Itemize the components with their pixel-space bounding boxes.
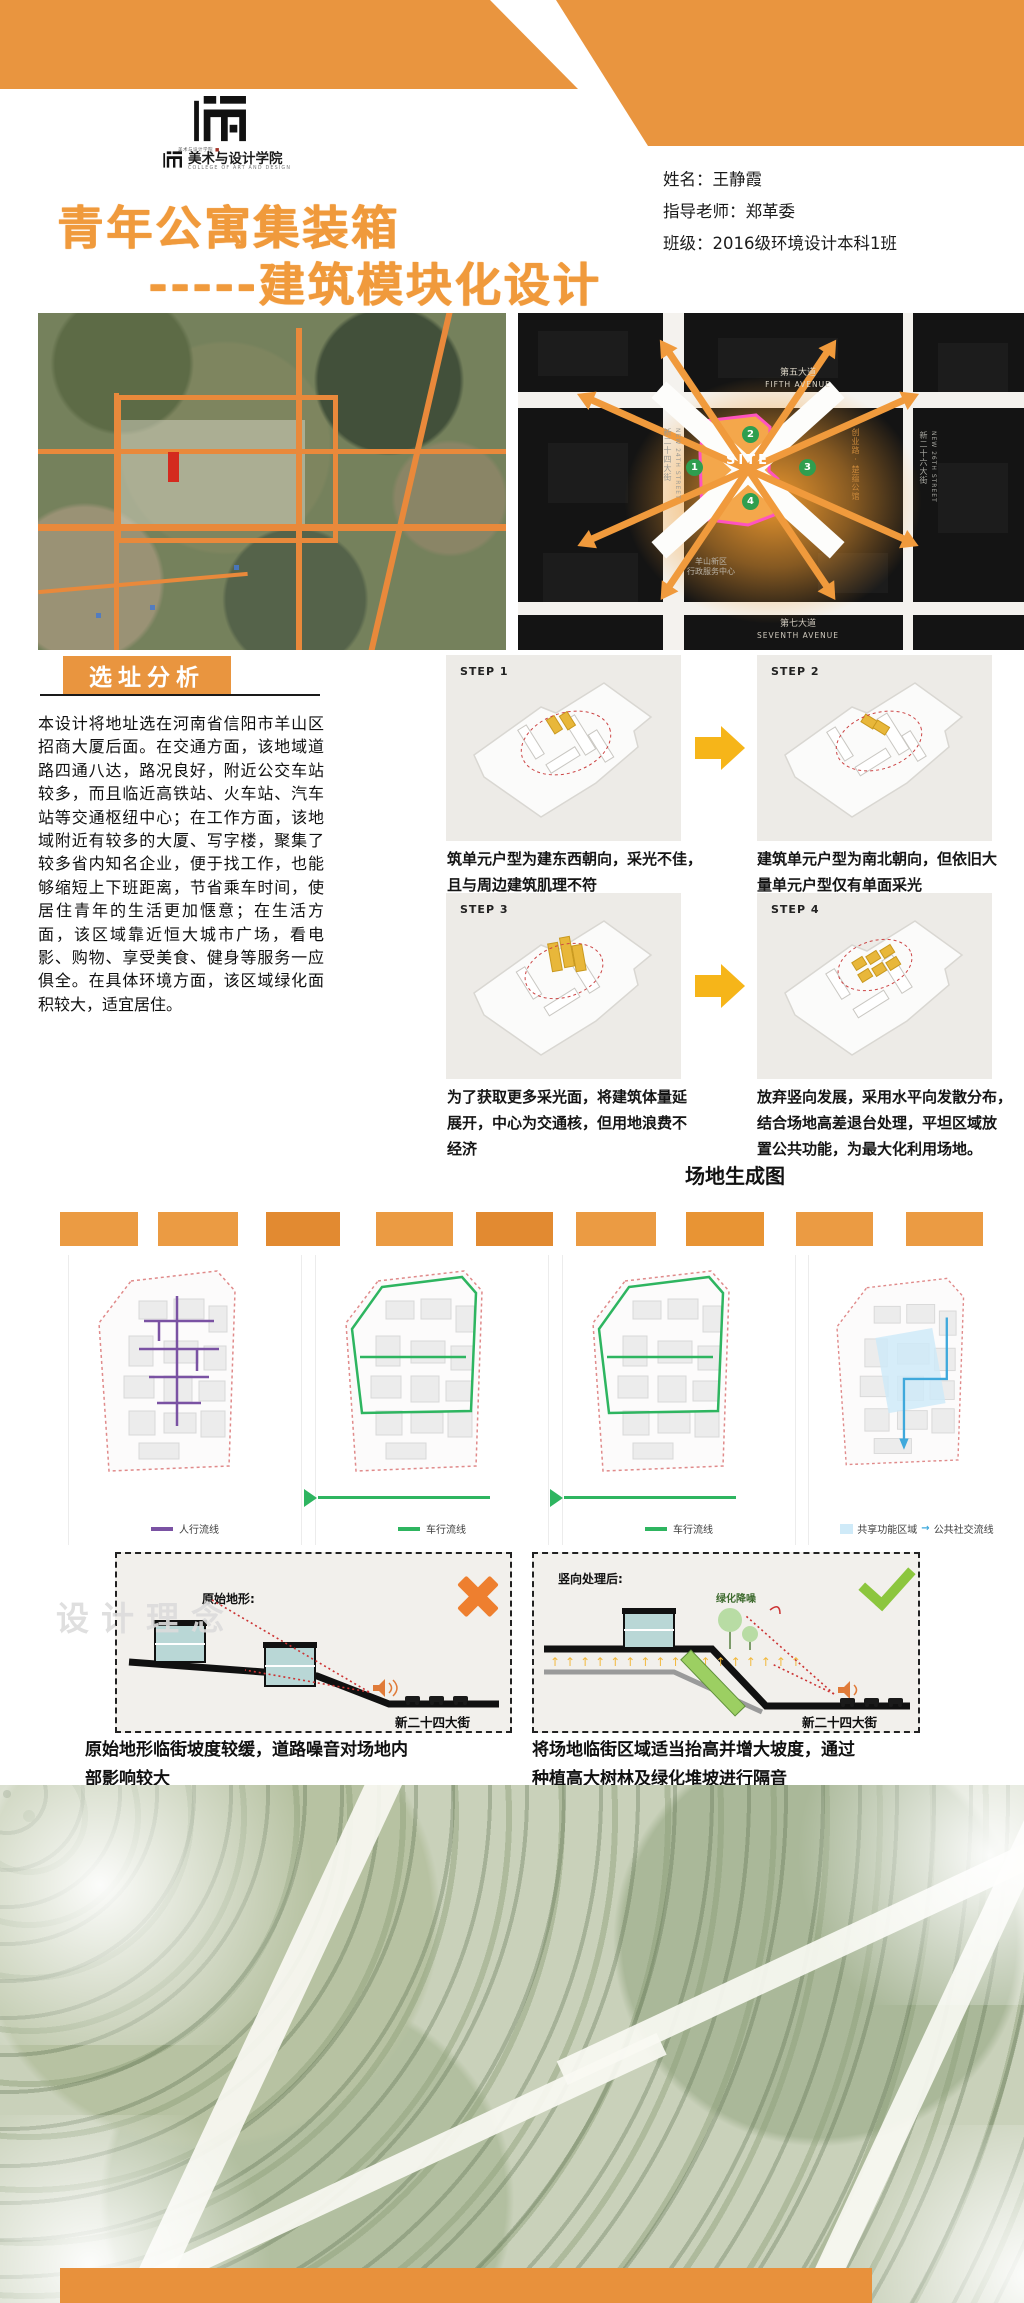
district-line1: 羊山新区 <box>668 557 754 567</box>
step-caption-1: 筑单元户型为建东西朝向，采光不佳， 且与周边建筑肌理不符 <box>447 846 702 898</box>
satellite-poi-dot <box>150 605 155 610</box>
divider-dash <box>906 1212 983 1246</box>
fog-overlay <box>760 1785 1024 2005</box>
axon-diagram-1 <box>446 655 681 841</box>
site-selection-paragraph: 本设计将地址选在河南省信阳市羊山区招商大厦后面。在交通方面，该地域道路四通八达，… <box>38 712 324 1016</box>
satellite-poi-dot <box>96 613 101 618</box>
divider-dash <box>476 1212 553 1246</box>
fog-overlay <box>0 1785 360 2045</box>
site-plan-4 <box>809 1261 1024 1496</box>
college-name-row: 美术与设计学院 COLLEGE OF ART AND DESIGN <box>163 151 291 171</box>
new-26th-en: NEW 26TH STREET <box>930 431 937 503</box>
uplift-arrows: ↑↑↑↑↑↑↑↑↑↑↑↑↑↑↑↑↑ <box>550 1655 806 1669</box>
step-panel-3: STEP 3 <box>446 893 681 1079</box>
new-26th-street-label: 新二十六大街 NEW 26TH STREET <box>918 431 937 503</box>
speaker-icon <box>838 1681 857 1699</box>
section-heading-site-selection: 选址分析 <box>63 656 231 694</box>
satellite-road-line <box>362 313 456 650</box>
road-label-after: 新二十四大街 <box>802 1712 877 1731</box>
vehicle-entry-icon <box>304 1489 317 1507</box>
new-24th-street-label: 新二十四大街 NEW 24TH STREET <box>662 428 681 500</box>
step-label-2: STEP 2 <box>771 665 820 678</box>
student-advisor: 指导老师：郑革委 <box>663 198 1003 222</box>
before-section-drawing <box>117 1554 510 1731</box>
tree-icon <box>718 1608 758 1650</box>
curl-arrow <box>770 1607 780 1614</box>
plan-legend-3: 车行流线 <box>563 1521 795 1536</box>
concept-box-after: 竖向处理后: ↑↑↑↑↑↑↑↑↑↑↑↑↑↑↑↑↑ <box>532 1552 920 1733</box>
map-block <box>538 331 628 376</box>
plan-column-vehicle-1: 车行流线 <box>315 1255 549 1545</box>
fifth-avenue-cn: 第五大道 <box>743 368 853 379</box>
divider-dash <box>60 1212 138 1246</box>
college-logo-icon <box>192 96 250 144</box>
concept-box-before: 原始地形: 新二十四大街 <box>115 1552 512 1733</box>
road-label-before: 新二十四大街 <box>395 1712 470 1731</box>
divider-dash <box>266 1212 340 1246</box>
map-block <box>938 343 1008 393</box>
legend-label: 车行流线 <box>426 1521 466 1536</box>
college-logo-small-icon <box>163 151 183 169</box>
new-26th-cn: 新二十六大街 <box>918 431 929 503</box>
map-block <box>548 443 628 503</box>
site-plan-1 <box>69 1261 301 1496</box>
legend-label: 公共社交流线 <box>934 1521 994 1536</box>
step-caption-3: 为了获取更多采光面，将建筑体量延 展开，中心为交通核，但用地浪费不 经济 <box>447 1084 702 1162</box>
step-panel-4: STEP 4 <box>757 893 992 1079</box>
after-section-drawing: ↑↑↑↑↑↑↑↑↑↑↑↑↑↑↑↑↑ 绿化降噪 <box>534 1554 918 1731</box>
site-number-4: 4 <box>742 493 759 510</box>
poi-label: 创业路·楚蕴公馆 <box>850 428 861 501</box>
speaker-icon <box>373 1679 397 1697</box>
axon-diagram-3 <box>446 893 681 1079</box>
satellite-road-line <box>38 572 248 594</box>
step-arrow-icon <box>695 737 721 759</box>
plan-column-shared: 共享功能区域 → 公共社交流线 <box>808 1255 1024 1545</box>
step-label-1: STEP 1 <box>460 665 509 678</box>
divider-dash <box>686 1212 764 1246</box>
site-label: SITE <box>718 453 778 468</box>
poster: 美术与设计学院 ■ 美术与设计学院 COLLEGE OF ART AND DES… <box>0 0 1024 2303</box>
divider-dash <box>576 1212 656 1246</box>
purple-line-swatch <box>151 1527 173 1531</box>
site-analysis-map: 1 2 3 4 SITE 第五大道 FIFTH AVENUE 第七大道 SEVE… <box>518 313 1024 650</box>
seventh-avenue-label: 第七大道 SEVENTH AVENUE <box>743 619 853 641</box>
legend-label: 车行流线 <box>673 1521 713 1536</box>
seventh-avenue-en: SEVENTH AVENUE <box>743 630 853 641</box>
satellite-ring-road <box>116 395 338 543</box>
plan-legend-2: 车行流线 <box>316 1521 548 1536</box>
legend-label: 共享功能区域 <box>857 1521 917 1536</box>
section-title-site-generation: 场地生成图 <box>645 1160 825 1189</box>
satellite-road-line <box>114 393 119 650</box>
plan-legend-4: 共享功能区域 → 公共社交流线 <box>809 1521 1024 1536</box>
section-underline <box>40 694 320 696</box>
district-line2: 行政服务中心 <box>668 567 754 577</box>
map-block <box>938 463 1008 533</box>
green-line-swatch <box>645 1527 667 1531</box>
step-label-4: STEP 4 <box>771 903 820 916</box>
tree-noise-label: 绿化降噪 <box>716 1592 757 1605</box>
student-name: 姓名：王静霞 <box>663 166 1003 190</box>
plan-legend-1: 人行流线 <box>69 1521 301 1536</box>
student-class: 班级：2016级环境设计本科1班 <box>663 230 1003 254</box>
vehicle-entry-icon <box>550 1489 563 1507</box>
district-label: 羊山新区 行政服务中心 <box>668 557 754 577</box>
site-plan-3 <box>563 1261 795 1496</box>
step-arrow-icon <box>695 975 721 997</box>
divider-dash <box>158 1212 238 1246</box>
site-number-2: 2 <box>742 426 759 443</box>
step-caption-4: 放弃竖向发展，采用水平向发散分布， 结合场地高差退台处理，平坦区域放 置公共功能… <box>757 1084 1012 1162</box>
divider-dash <box>376 1212 453 1246</box>
legend-label: 人行流线 <box>179 1521 219 1536</box>
vehicle-bottom-line <box>564 1496 736 1499</box>
site-number-1: 1 <box>686 459 703 476</box>
site-number-3: 3 <box>799 459 816 476</box>
satellite-poi-dot <box>234 565 239 570</box>
seventh-avenue-cn: 第七大道 <box>743 619 853 630</box>
building-icon <box>622 1608 676 1648</box>
header-band-left <box>0 0 600 89</box>
step-caption-2: 建筑单元户型为南北朝向，但依旧大 量单元户型仅有单面采光 <box>757 846 1012 898</box>
green-line-swatch <box>398 1527 420 1531</box>
step-panel-2: STEP 2 <box>757 655 992 841</box>
step-panel-1: STEP 1 <box>446 655 681 841</box>
college-name: 美术与设计学院 <box>188 151 291 166</box>
axon-diagram-4 <box>757 893 992 1079</box>
divider-dash <box>796 1212 873 1246</box>
blue-arrow-swatch: → <box>921 1523 929 1534</box>
satellite-road-line <box>38 524 506 531</box>
fifth-avenue-label: 第五大道 FIFTH AVENUE <box>743 368 853 390</box>
satellite-road-line <box>296 328 302 650</box>
shared-area-swatch <box>840 1524 853 1534</box>
step-label-3: STEP 3 <box>460 903 509 916</box>
footer-bar <box>60 2268 872 2303</box>
vehicle-bottom-line <box>318 1496 490 1499</box>
college-name-en: COLLEGE OF ART AND DESIGN <box>188 166 291 171</box>
new-24th-en: NEW 24TH STREET <box>674 428 681 500</box>
axon-diagram-2 <box>757 655 992 841</box>
satellite-road-line <box>38 449 506 454</box>
site-plan-2 <box>316 1261 548 1496</box>
poster-title-line2: -----建筑模块化设计 <box>148 249 601 315</box>
aerial-rendering <box>0 1785 1024 2303</box>
new-24th-cn: 新二十四大街 <box>662 428 673 500</box>
site-marker <box>168 452 179 482</box>
plan-column-pedestrian: 人行流线 <box>68 1255 302 1545</box>
design-concept-watermark: 设计理念 <box>56 1592 236 1640</box>
satellite-map <box>38 313 506 650</box>
fifth-avenue-en: FIFTH AVENUE <box>743 379 853 390</box>
plan-column-vehicle-2: 车行流线 <box>562 1255 796 1545</box>
